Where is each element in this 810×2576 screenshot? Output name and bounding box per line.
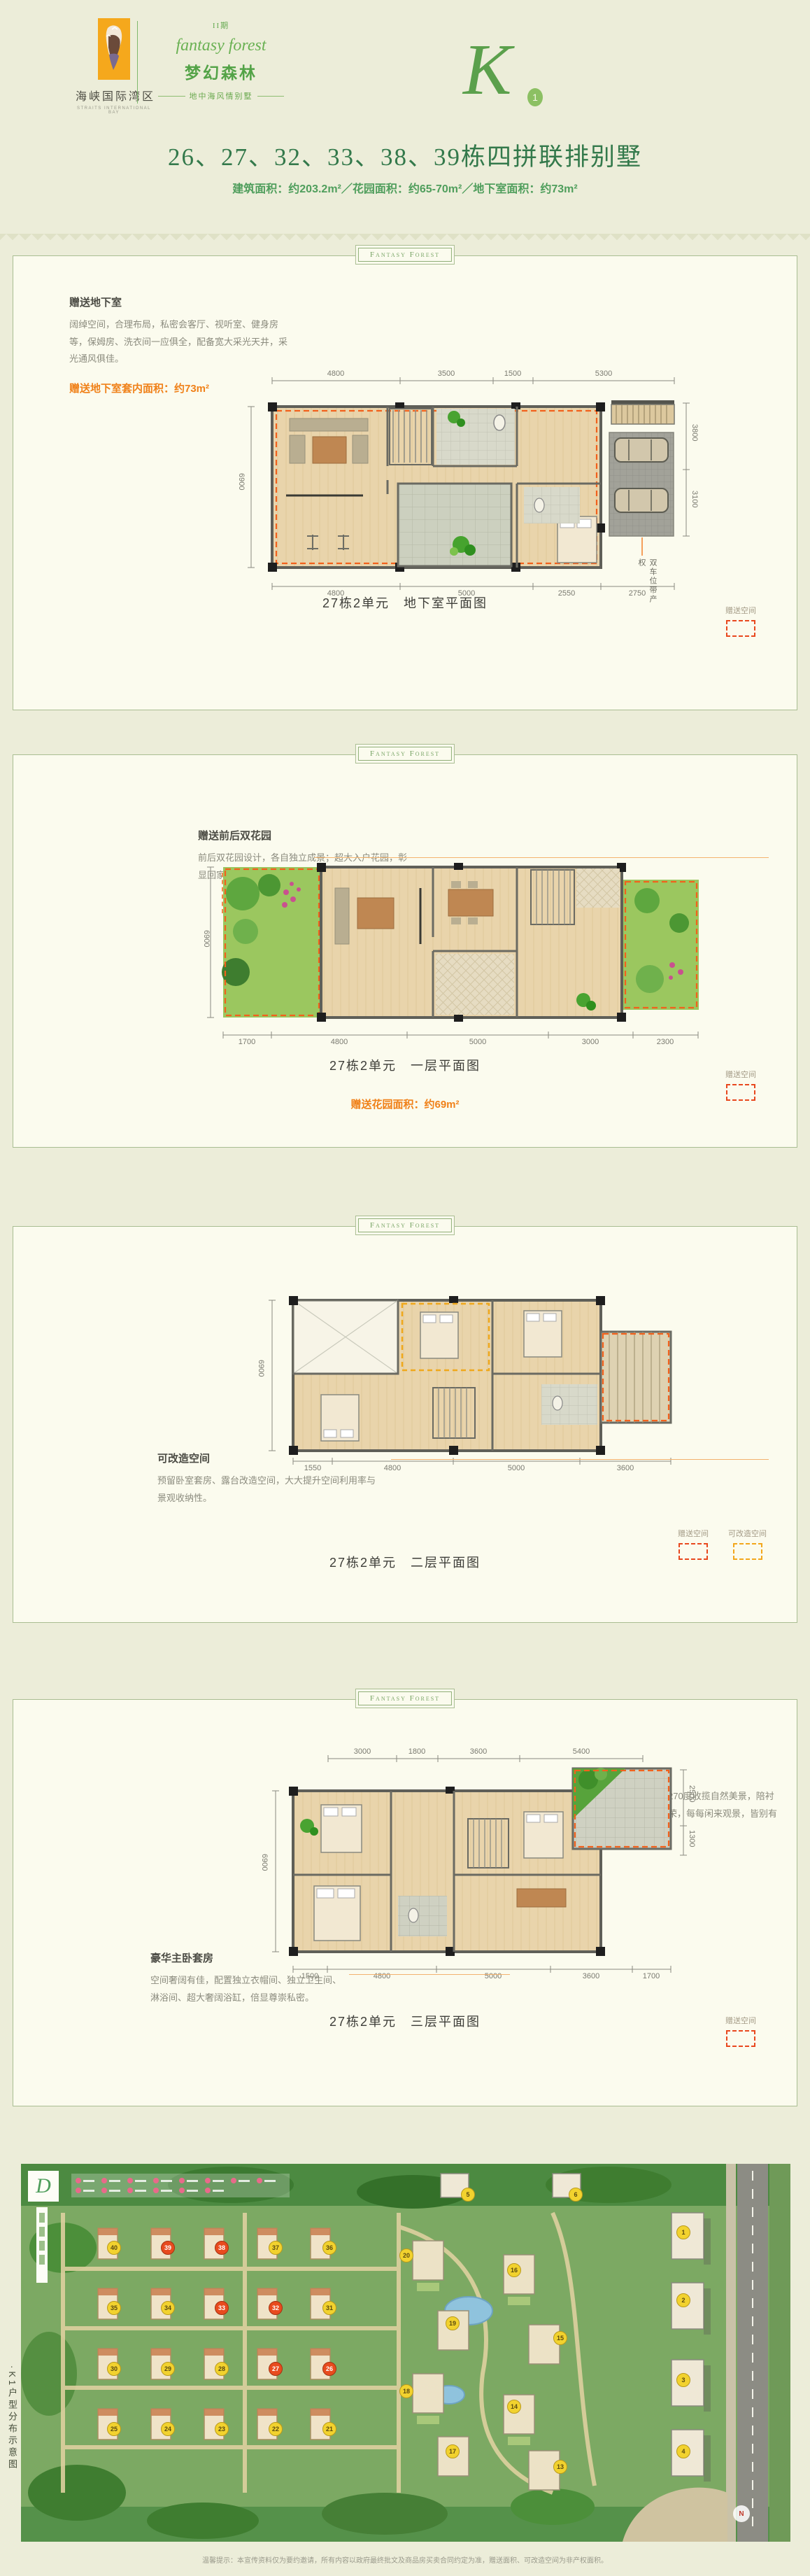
badge-text: Fantasy Forest (370, 1694, 440, 1703)
header-divider (137, 21, 138, 104)
dim-label: 3600 (470, 1747, 487, 1756)
dim-label: 4800 (374, 1972, 390, 1980)
note-pointer-line (391, 1459, 769, 1460)
legend-gift-box (726, 620, 755, 637)
building-markers-layer: 4039383736353433323130292827262524232221… (21, 2164, 790, 2542)
note-body: 预留卧室套房、露台改造空间，大大提升空间利用率与景观收纳性。 (157, 1472, 381, 1507)
note-pointer-line (349, 1974, 510, 1975)
logo-name-en: STRAITS INTERNATIONAL BAY (76, 106, 152, 115)
building-marker: 4 (676, 2444, 690, 2458)
building-marker: 34 (161, 2301, 175, 2315)
badge-text: Fantasy Forest (370, 749, 440, 758)
building-marker: 20 (399, 2248, 413, 2262)
floorplan-basement: 双车位带产权 480035001500530048005000255027506… (223, 368, 741, 606)
project-logo: 海峡国际湾区 STRAITS INTERNATIONAL BAY (76, 18, 152, 115)
legend-gift-label: 赠送空间 (725, 605, 756, 616)
legend-gift: 赠送空间 (678, 1528, 709, 1560)
compass-letter: N (739, 2510, 744, 2518)
legend-gift: 赠送空间 (725, 2015, 756, 2047)
dim-label: 5300 (595, 369, 612, 378)
building-marker: 22 (269, 2422, 283, 2436)
building-marker: 14 (507, 2400, 521, 2414)
building-marker: 25 (107, 2422, 121, 2436)
building-marker: 39 (161, 2241, 175, 2255)
logo-name-cn: 海峡国际湾区 (76, 87, 152, 104)
building-marker: 30 (107, 2362, 121, 2376)
building-marker: 37 (269, 2241, 283, 2255)
building-marker: 2 (676, 2293, 690, 2307)
dim-label: 6900 (237, 473, 246, 490)
unit-type-mark: K 1 (463, 34, 561, 118)
note-title: 赠送地下室 (69, 295, 290, 309)
fantasy-forest-badge: Fantasy Forest (358, 248, 452, 262)
panel-basement: Fantasy Forest 赠送地下室 阔绰空间，合理布局，私密会客厅、视听室… (13, 255, 797, 710)
brand-name: 梦幻森林 (158, 59, 284, 83)
floorplan-basement-drawing (223, 368, 741, 606)
brochure-page: 海峡国际湾区 STRAITS INTERNATIONAL BAY II期 fan… (0, 0, 810, 2576)
dim-label: 3800 (690, 424, 699, 441)
dim-label: 4800 (327, 369, 344, 378)
dim-label: 6900 (257, 1360, 265, 1377)
site-map-vertical-label: ·K1户型分布示意图 (6, 2365, 19, 2471)
building-marker: 13 (553, 2460, 567, 2474)
dim-label: 3600 (617, 1464, 634, 1472)
legend-gift-label: 赠送空间 (725, 2015, 756, 2026)
building-marker: 18 (399, 2384, 413, 2398)
fantasy-forest-badge: Fantasy Forest (358, 1218, 452, 1232)
garden-area-highlight: 赠送花园面积：约69m² (13, 1097, 797, 1111)
plan-caption: 27栋2单元 一层平面图 (13, 1056, 797, 1074)
dim-label: 3000 (582, 1038, 599, 1046)
legend-gift-label: 赠送空间 (678, 1528, 709, 1539)
dim-label: 4800 (384, 1464, 401, 1472)
floorplan-second-floor: 15504800500036006900 (223, 1269, 741, 1479)
dim-label: 1800 (408, 1747, 425, 1756)
parking-pointer-line (641, 537, 643, 556)
logo-island-art (98, 18, 130, 80)
note-second-floor: 可改造空间 预留卧室套房、露台改造空间，大大提升空间利用率与景观收纳性。 (157, 1451, 381, 1507)
compass-icon: N (733, 2505, 750, 2522)
plan-caption: 27栋2单元 地下室平面图 (13, 593, 797, 612)
building-marker: 40 (107, 2241, 121, 2255)
building-marker: 24 (161, 2422, 175, 2436)
legend-gift-box (726, 2030, 755, 2047)
building-marker: 5 (461, 2188, 475, 2202)
badge-text: Fantasy Forest (370, 251, 440, 259)
badge-text: Fantasy Forest (370, 1221, 440, 1230)
dim-label: 1700 (643, 1972, 660, 1980)
note-title: 可改造空间 (157, 1451, 381, 1465)
dim-label: 3000 (354, 1747, 371, 1756)
legend-gift-box (678, 1543, 708, 1560)
panel-second-floor: Fantasy Forest (13, 1226, 797, 1623)
legend-convertible: 可改造空间 (728, 1528, 767, 1560)
unit-type-letter: K (463, 34, 561, 106)
building-marker: 28 (215, 2362, 229, 2376)
brand-tagline: 地中海风情别墅 (158, 90, 284, 101)
building-marker: 38 (215, 2241, 229, 2255)
building-marker: 36 (322, 2241, 336, 2255)
dim-label: 5400 (573, 1747, 590, 1756)
floorplan-first-floor: 170048005000300023006900 (202, 825, 748, 1056)
note-master-suite: 豪华主卧套房 空间奢阔有佳，配置独立衣帽间、独立卫生间、淋浴间、超大奢阔浴缸，倍… (150, 1950, 350, 2006)
building-marker: 23 (215, 2422, 229, 2436)
building-marker: 27 (269, 2362, 283, 2376)
building-marker: 6 (569, 2188, 583, 2202)
building-marker: 21 (322, 2422, 336, 2436)
disclaimer-text: 温馨提示：本宣传资料仅为要约邀请，所有内容以政府最终批文及商品房买卖合同约定为准… (0, 2554, 810, 2565)
dim-label: 4800 (331, 1038, 348, 1046)
brand-script: fantasy forest (158, 36, 284, 55)
building-marker: 16 (507, 2263, 521, 2277)
dim-label: 1500 (504, 369, 521, 378)
building-marker: 32 (269, 2301, 283, 2315)
legend-gift-box (726, 1084, 755, 1101)
dim-label: 3500 (438, 369, 455, 378)
building-marker: 35 (107, 2301, 121, 2315)
fantasy-forest-badge: Fantasy Forest (358, 1691, 452, 1705)
panel-first-floor: Fantasy Forest 赠送前后双花园 前后双花园设计，各自独立成景；超大… (13, 754, 797, 1148)
fantasy-forest-badge: Fantasy Forest (358, 747, 452, 761)
building-marker: 1 (676, 2225, 690, 2239)
floorplan-second-drawing (223, 1269, 741, 1479)
legend-gift: 赠送空间 (725, 605, 756, 637)
dim-label: 3100 (690, 491, 699, 507)
dim-label: 3600 (583, 1972, 599, 1980)
page-subtitle: 建筑面积：约203.2m²／花园面积：约65-70m²／地下室面积：约73m² (0, 179, 810, 196)
site-master-plan: D 40393837363534333231302928272625242322… (21, 2164, 790, 2542)
dim-label: 1700 (239, 1038, 255, 1046)
dim-label: 1300 (688, 1830, 696, 1847)
page-title: 26、27、32、33、38、39栋四拼联排别墅 (0, 137, 810, 173)
legend-convertible-box (733, 1543, 762, 1560)
dim-label: 6900 (260, 1854, 269, 1871)
brand-block: II期 fantasy forest 梦幻森林 地中海风情别墅 (158, 20, 284, 101)
note-title: 豪华主卧套房 (150, 1950, 350, 1965)
building-marker: 3 (676, 2373, 690, 2387)
building-marker: 33 (215, 2301, 229, 2315)
zigzag-divider (0, 234, 810, 244)
building-marker: 19 (446, 2316, 460, 2330)
dim-label: 2500 (688, 1785, 696, 1802)
building-marker: 31 (322, 2301, 336, 2315)
brand-phase: II期 (158, 20, 284, 31)
legend-gift-label: 赠送空间 (725, 1069, 756, 1080)
floorplan-first-drawing (202, 825, 748, 1056)
panel-third-floor: Fantasy Forest 拐角景观露台 宽大拐角露台，270度收揽自然美景，… (13, 1699, 797, 2106)
plan-caption: 27栋2单元 三层平面图 (13, 2012, 797, 2030)
dim-label: 2300 (657, 1038, 674, 1046)
building-marker: 17 (446, 2444, 460, 2458)
unit-type-number: 1 (527, 88, 543, 106)
legend-gift: 赠送空间 (725, 1069, 756, 1101)
building-marker: 26 (322, 2362, 336, 2376)
dim-label: 5000 (469, 1038, 486, 1046)
dim-label: 6900 (202, 930, 211, 947)
legend-convertible-label: 可改造空间 (728, 1528, 767, 1539)
dim-label: 5000 (508, 1464, 525, 1472)
dim-label: 5000 (485, 1972, 502, 1980)
note-body: 阔绰空间，合理布局，私密会客厅、视听室、健身房等，保姆房、洗衣间一应俱全，配备宽… (69, 316, 290, 368)
building-marker: 29 (161, 2362, 175, 2376)
building-marker: 15 (553, 2331, 567, 2345)
note-body: 空间奢阔有佳，配置独立衣帽间、独立卫生间、淋浴间、超大奢阔浴缸，倍显尊崇私密。 (150, 1972, 350, 2006)
